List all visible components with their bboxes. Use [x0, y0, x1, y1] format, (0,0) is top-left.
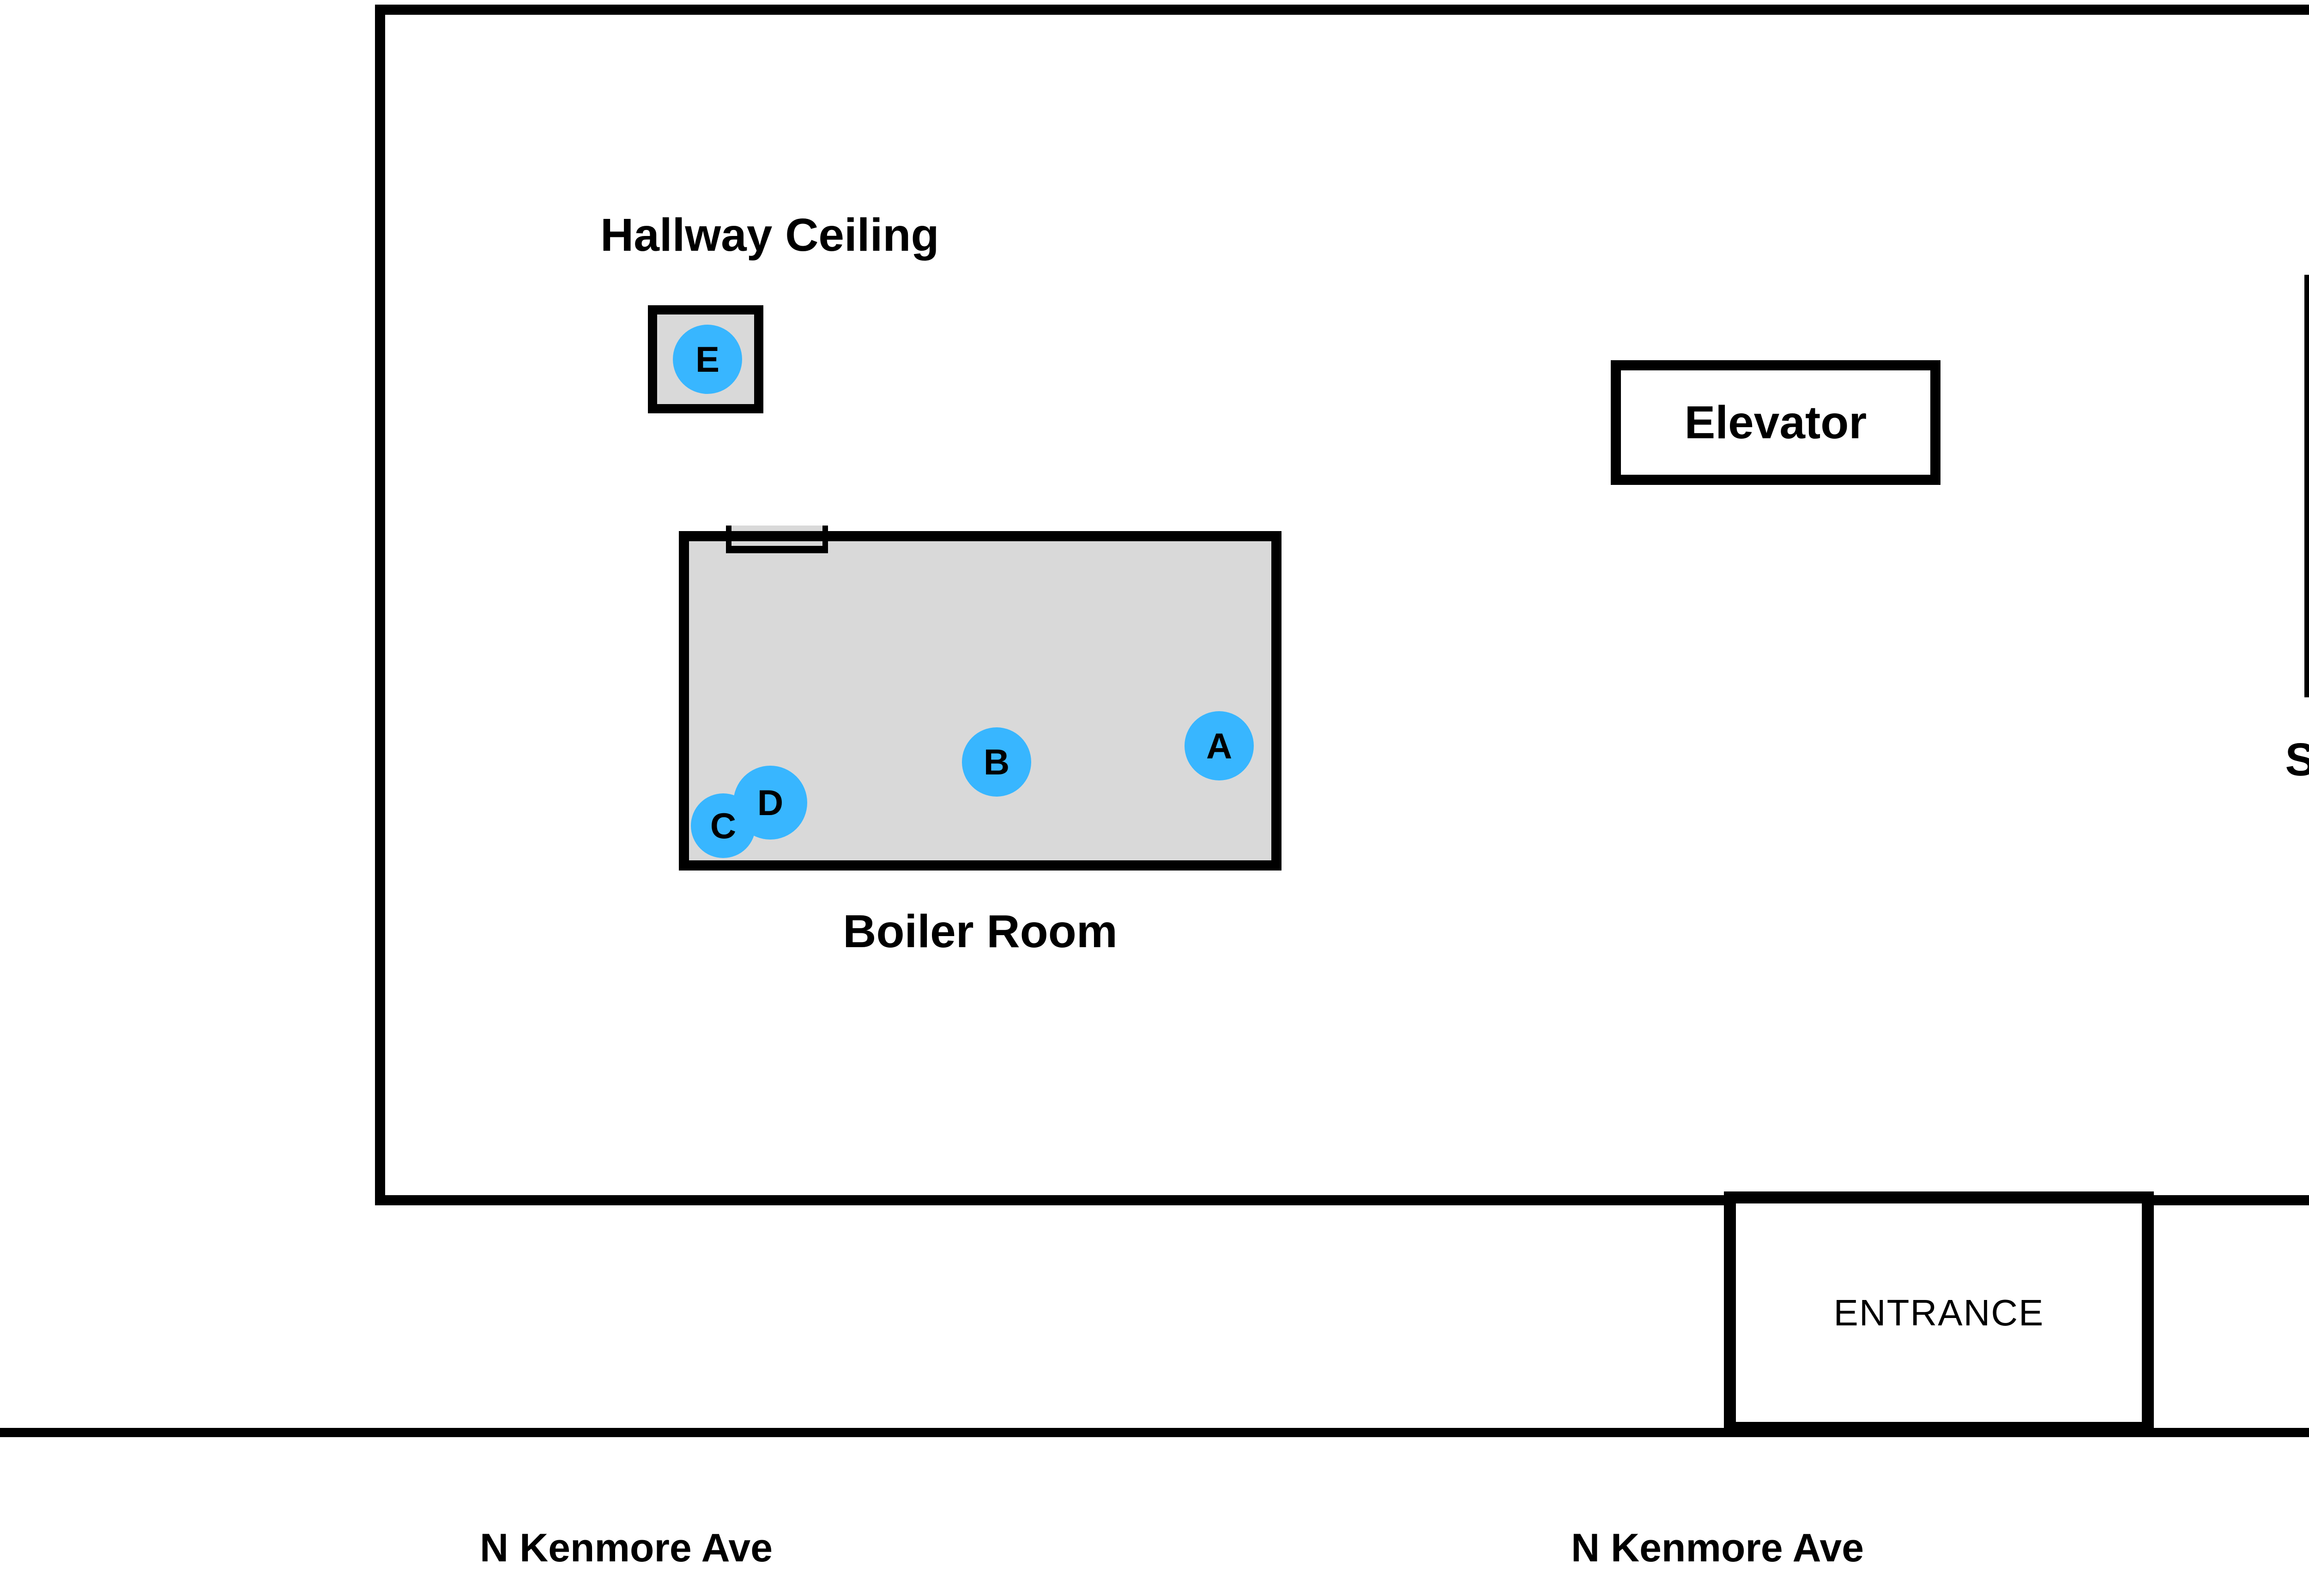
marker-D: D	[733, 766, 807, 840]
entrance-label: ENTRANCE	[1833, 1292, 2044, 1334]
elevator-label: Elevator	[1685, 396, 1867, 449]
street-line	[0, 1428, 2309, 1437]
marker-E: E	[673, 325, 742, 394]
marker-A: A	[1185, 711, 1254, 780]
elevator-room: Elevator	[1611, 360, 1940, 485]
building-outline	[375, 5, 2309, 1205]
marker-B: B	[962, 727, 1031, 797]
storage-room	[2304, 275, 2309, 697]
street-label-0: N Kenmore Ave	[480, 1525, 773, 1571]
hallway-ceiling-label: Hallway Ceiling	[600, 209, 939, 262]
boiler-room-door-notch-bar	[726, 531, 828, 541]
storage-room-label: Storage Room	[2284, 733, 2309, 786]
street-label-1: N Kenmore Ave	[1571, 1525, 1864, 1571]
entrance-box: ENTRANCE	[1724, 1191, 2154, 1434]
boiler-room-label: Boiler Room	[679, 905, 1281, 958]
floorplan-canvas: Hallway Ceiling Elevator Boiler Room Sto…	[0, 0, 2309, 1596]
